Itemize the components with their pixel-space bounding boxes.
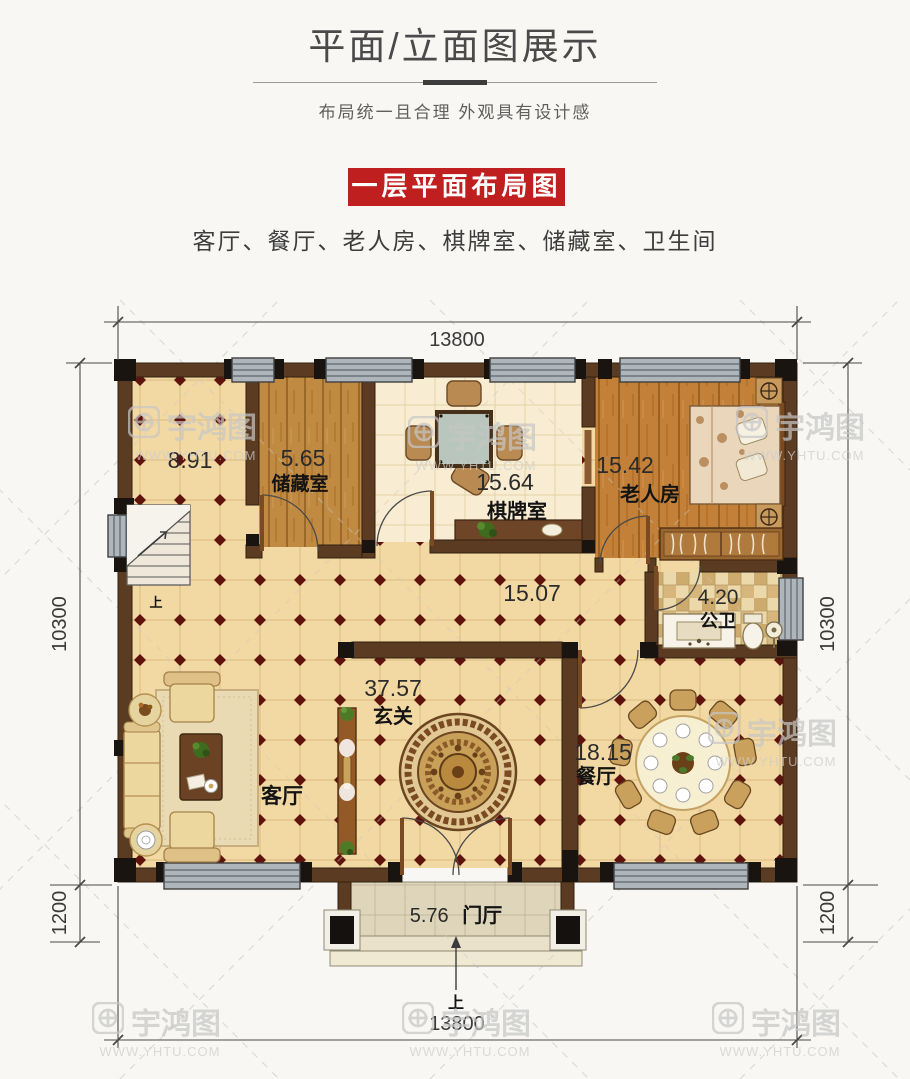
elder-label: 老人房 [620,482,680,506]
watermark: 宇鸿图WWW.YHTU.COM [403,1003,531,1059]
bath-label: 公卫 [700,611,736,631]
dim-right-main: 10300 [817,596,839,652]
nightstand-bottom [756,504,782,530]
armchair-bottom [164,812,220,862]
dim-top: 13800 [429,329,485,351]
armchair-top [164,672,220,722]
porch-name: 门厅 [462,903,502,927]
tv-cabinet [338,707,356,855]
svg-text:宇鸿图: 宇鸿图 [441,1008,531,1041]
watermark: 宇鸿图WWW.YHTU.COM [713,1003,841,1059]
chess-label: 棋牌室 [487,499,547,523]
dim-right-porch: 1200 [817,891,839,936]
living-set [124,672,258,862]
svg-text:WWW.YHTU.COM: WWW.YHTU.COM [719,1044,840,1059]
elder-area: 15.42 [596,452,654,478]
page-title: 平面/立面图展示 [0,16,910,70]
svg-text:WWW.YHTU.COM: WWW.YHTU.COM [715,754,836,769]
svg-text:WWW.YHTU.COM: WWW.YHTU.COM [409,1044,530,1059]
floor-medallion [400,714,516,830]
nightstand-top [756,378,782,404]
living-label: 客厅 [261,784,303,808]
hall-area: 15.07 [503,580,561,606]
foyer-area: 37.57 [364,675,422,701]
svg-text:宇鸿图: 宇鸿图 [747,718,837,751]
floor-plan-svg: 上 [0,300,910,1079]
dining-label: 餐厅 [576,764,616,788]
header: 平面/立面图展示 布局统一且合理 外观具有设计感 [0,0,910,123]
porch-area: 5.76 [410,905,449,927]
svg-text:宇鸿图: 宇鸿图 [447,422,537,455]
toilet [743,614,763,649]
title-divider [253,79,657,86]
bath-area: 4.20 [698,586,739,609]
section-banner: 一层平面布局图 [348,168,565,206]
svg-text:宇鸿图: 宇鸿图 [751,1008,841,1041]
side-table-bottom [130,824,162,856]
svg-text:宇鸿图: 宇鸿图 [775,412,865,445]
window-bottom-living [164,863,300,889]
coffee-table [180,734,222,800]
storage-label: 储藏室 [271,472,328,495]
storage-area: 5.65 [281,445,326,471]
poster-page: 平面/立面图展示 布局统一且合理 外观具有设计感 一层平面布局图 客厅、餐厅、老… [0,0,910,1079]
sofa [124,722,160,838]
window-top-1 [232,358,274,382]
window-top-3 [490,358,575,382]
svg-text:宇鸿图: 宇鸿图 [167,412,257,445]
dining-area: 18.15 [574,739,632,765]
stairs-up-label: 上 [149,595,162,610]
svg-text:WWW.YHTU.COM: WWW.YHTU.COM [135,448,256,463]
window-top-4 [620,358,740,382]
stairs [127,505,190,585]
dim-left-porch: 1200 [49,891,71,936]
porch-floor [351,882,561,936]
wardrobe [660,528,783,560]
svg-text:WWW.YHTU.COM: WWW.YHTU.COM [743,448,864,463]
window-bottom-dining [614,863,748,889]
room-list-line: 客厅、餐厅、老人房、棋牌室、储藏室、卫生间 [0,222,910,256]
watermark: 宇鸿图WWW.YHTU.COM [93,1003,221,1059]
svg-text:WWW.YHTU.COM: WWW.YHTU.COM [99,1044,220,1059]
chess-cabinet [455,520,582,540]
foyer-label: 玄关 [373,704,413,728]
window-top-2 [326,358,412,382]
side-table-top [129,694,161,726]
svg-text:WWW.YHTU.COM: WWW.YHTU.COM [415,458,536,473]
svg-text:宇鸿图: 宇鸿图 [131,1008,221,1041]
page-subtitle: 布局统一且合理 外观具有设计感 [0,98,910,123]
dim-left-main: 10300 [49,596,71,652]
